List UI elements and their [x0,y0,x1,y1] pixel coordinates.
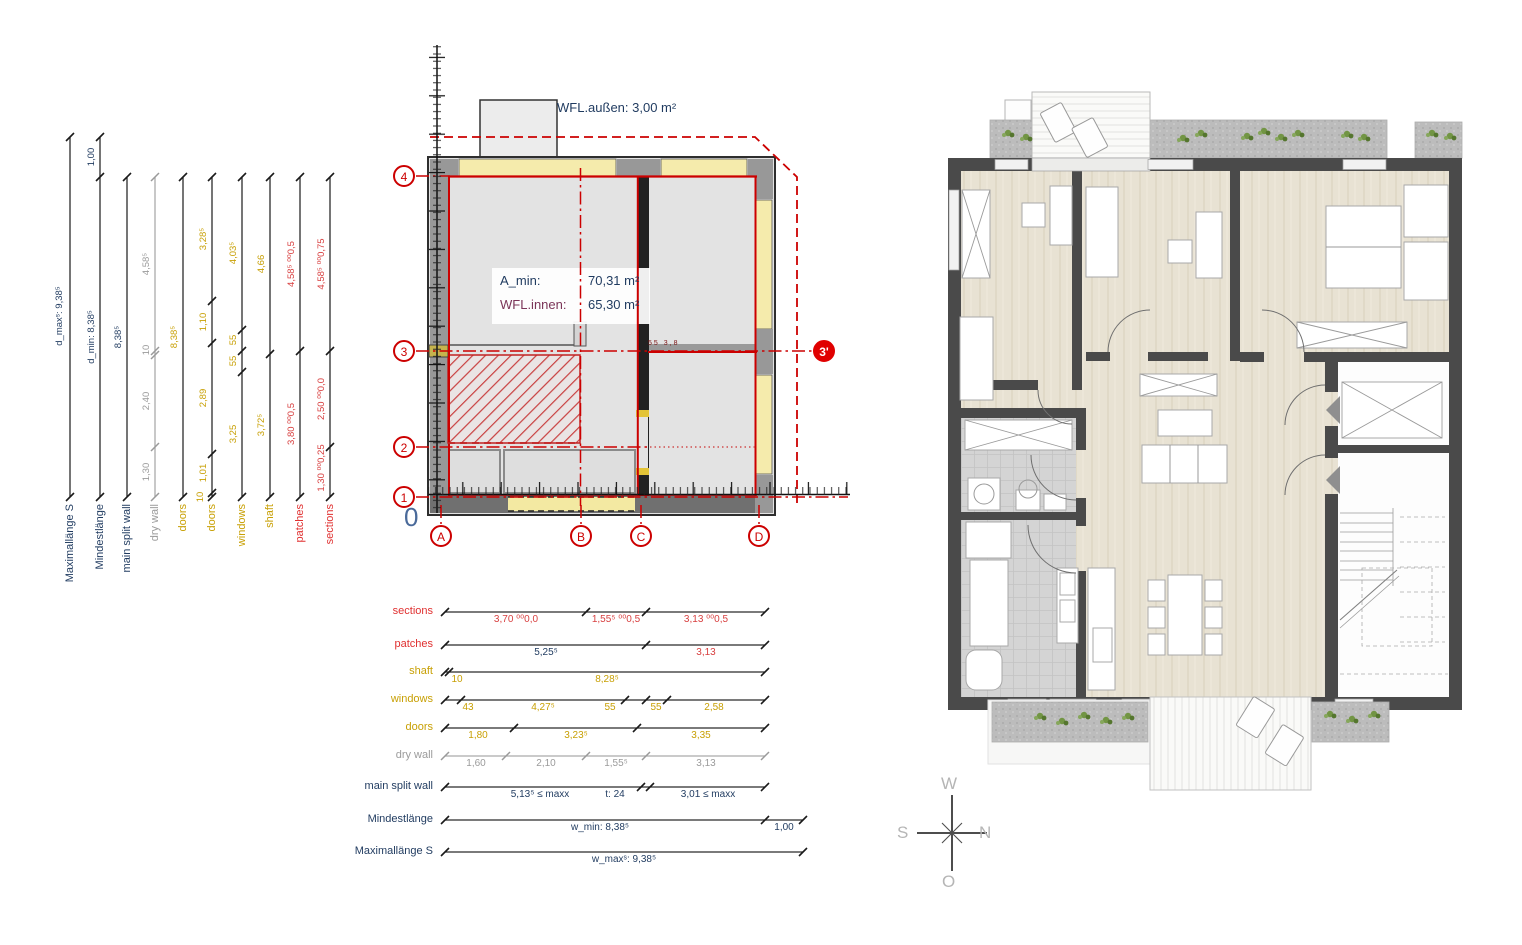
compass-north: N [979,823,991,843]
desk [1196,212,1222,278]
dim-value: 10 [195,492,206,503]
grid-bubble-3: 3 [393,340,415,362]
dim-value: 1,00 [86,148,97,167]
dim-value: 1,30 ⁰⁰0,25 [316,444,327,491]
dim-value: 2,89 [198,389,209,408]
balcony-outline [480,100,557,160]
dim-value: 2,10 [536,758,555,769]
chair [1148,607,1165,628]
dim-value: 55 [228,335,239,346]
bottom-dimension-lines [441,608,807,856]
dim-chain-label: patches [288,638,433,650]
dim-value: 5,13⁵ ≤ maxx [511,789,570,800]
dim-value: 3,23⁵ [564,730,588,741]
dim-value: w_min: 8,38⁵ [571,822,629,833]
grid-bubble-2: 2 [393,436,415,458]
dim-value: 4,58⁵ ⁰⁰0,5 [286,241,297,287]
dim-value: 2,58 [704,702,723,713]
dim-value: 43 [462,702,473,713]
line3-dim-note: 55 3,8 [648,340,679,347]
dim-chain-label: patches [294,504,306,543]
grid-bubble-B: B [570,525,592,547]
dim-value: 3,01 ≤ maxx [681,789,735,800]
dim-value: 3,80 ⁰⁰0,5 [286,403,297,445]
dim-chain-label: Mindestlänge [288,813,433,825]
dim-chain-label: doors [177,504,189,532]
dim-value: 55 [604,702,615,713]
dim-value: 1,80 [468,730,487,741]
chair [1148,580,1165,601]
dim-chain-label: windows [236,504,248,546]
wfl-aussen-label: WFL.außen: 3,00 m² [557,100,676,115]
dim-value: 3,13 ⁰⁰0,5 [684,614,728,625]
dim-value: 3,35 [691,730,710,741]
grid-bubble-A: A [430,525,452,547]
dim-value: 1,10 [198,313,209,332]
dim-value: 3,72⁵ [256,414,267,436]
dim-value: 4,58⁵ [141,253,152,275]
dim-chain-label: shaft [264,504,276,528]
chair [1205,634,1222,655]
dim-value: 2,40 [141,392,152,411]
dim-chain-label: dry wall [149,504,161,541]
rendered-floorplan [948,92,1462,790]
dim-value: t: 24 [605,789,624,800]
amin-label: A_min: [500,273,540,288]
grid-bubble-D: D [748,525,770,547]
sink [1044,494,1066,510]
dim-chain-label: dry wall [288,749,433,761]
dim-value: 10 [141,345,152,356]
amin-value: 70,31 m² [588,273,639,288]
dim-value: 3,28⁵ [198,228,209,250]
chair [1148,634,1165,655]
dim-value: d_min: 8,38⁵ [86,310,97,364]
dim-value: 1,01 [198,464,209,483]
hatched-area [448,355,580,443]
architectural-drawing-sheet: d_maxˢ: 9,38⁵ 1,00 d_min: 8,38⁵ 8,38⁵ 4,… [0,0,1522,945]
compass-south: S [897,823,908,843]
dim-value: 4,58⁵ ⁰⁰0,75 [316,238,327,289]
chair [1205,580,1222,601]
sofa [1142,445,1227,483]
dim-chain-label: sections [324,504,336,544]
bathtub [966,650,1002,690]
compass-east: O [942,872,955,892]
planter [1312,702,1389,742]
dim-value: 4,03⁵ [228,242,239,264]
dim-chain-label: windows [288,693,433,705]
planter [992,702,1148,742]
grid-bubble-C: C [630,525,652,547]
dim-value: 8,28⁵ [595,674,619,685]
chair [1205,607,1222,628]
dim-chain-label: Mindestlänge [94,504,106,569]
bed [1086,187,1118,277]
dim-value: 1,55⁵ ⁰⁰0,5 [592,614,640,625]
dim-chain-label: doors [288,721,433,733]
grid-bubble-1: 1 [393,486,415,508]
drawing-vector-layer [0,0,1522,945]
dim-value: 3,13 [696,647,715,658]
dim-chain-label: Maximallänge S [64,504,76,582]
dim-value: 1,55⁵ [604,758,628,769]
grid-bubble-3prime: 3' [813,340,835,362]
wfl-innen-value: 65,30 m² [588,297,639,312]
dim-value: 5,25⁵ [534,647,558,658]
compass-rose [917,795,987,871]
dim-value: w_maxˢ: 9,38⁵ [592,854,656,865]
dim-value: 10 [451,674,462,685]
dim-value: 4,27⁵ [531,702,555,713]
dim-chain-label: doors [206,504,218,532]
grid-bubble-4: 4 [393,165,415,187]
loveseat [1158,410,1212,436]
dim-chain-label: shaft [288,665,433,677]
dim-chain-label: Maximallänge S [288,845,433,857]
dining-table [1168,575,1202,655]
dim-value: 1,00 [774,822,793,833]
dim-value: 1,60 [466,758,485,769]
dim-value: 55 [228,356,239,367]
dim-value: d_maxˢ: 9,38⁵ [54,286,65,345]
dim-value: 8,38⁵ [113,326,124,348]
dim-chain-label: main split wall [121,504,133,572]
dim-chain-label: main split wall [288,780,433,792]
dim-value: 3,25 [228,425,239,444]
dim-value: 2,50 ⁰⁰0,0 [316,378,327,420]
dim-value: 3,70 ⁰⁰0,0 [494,614,538,625]
wfl-innen-label: WFL.innen: [500,297,566,312]
dim-value: 4,66 [256,255,267,274]
dim-chain-label: sections [288,605,433,617]
dim-value: 55 [650,702,661,713]
washing-machine [968,478,1000,510]
dim-value: 8,38⁵ [169,326,180,348]
compass-west: W [941,774,957,794]
dim-value: 1,30 [141,463,152,482]
dim-value: 3,13 [696,758,715,769]
